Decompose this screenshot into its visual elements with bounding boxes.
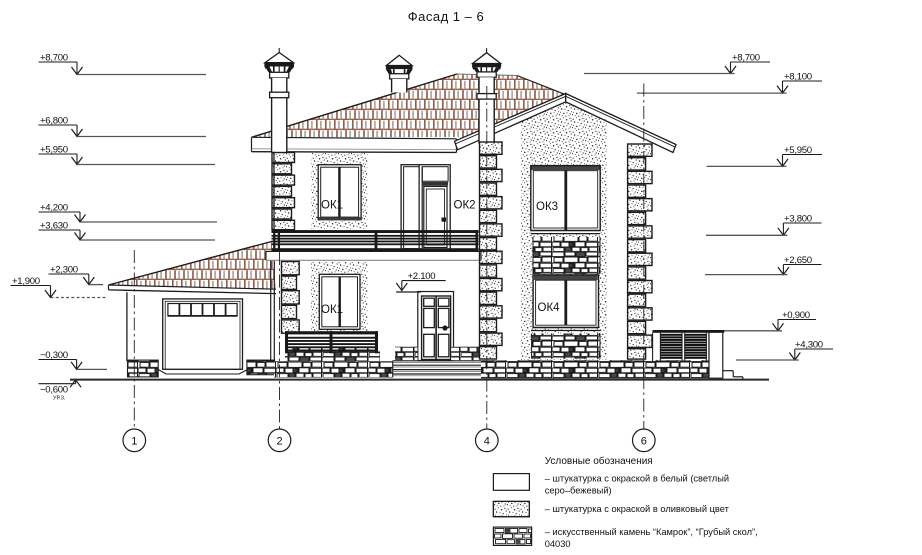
svg-text:ОК1: ОК1	[321, 200, 343, 212]
svg-text:ОК1: ОК1	[321, 304, 343, 316]
svg-text:ОК2: ОК2	[454, 200, 476, 212]
svg-text:– искусственный камень “Камро: – искусственный камень “Камрок”, “Грубый…	[545, 527, 758, 537]
svg-text:серо–бежевый): серо–бежевый)	[545, 486, 612, 496]
svg-text:1: 1	[131, 435, 137, 447]
svg-text:ОК4: ОК4	[538, 302, 561, 314]
svg-text:Фасад 1 – 6: Фасад 1 – 6	[408, 9, 484, 24]
svg-text:– штукатурка с окраской в оли: – штукатурка с окраской в оливковый цвет	[545, 504, 730, 514]
svg-text:04030: 04030	[545, 539, 571, 549]
svg-text:ОК3: ОК3	[536, 201, 558, 213]
svg-text:УР.З.: УР.З.	[53, 396, 66, 402]
svg-text:– штукатурка с окраской в бе: – штукатурка с окраской в белый (светлый	[545, 474, 729, 484]
svg-text:Условные обозначения: Условные обозначения	[545, 455, 653, 467]
svg-text:2: 2	[276, 435, 282, 447]
svg-text:−0,600: −0,600	[40, 385, 68, 396]
svg-text:6: 6	[641, 435, 647, 447]
svg-text:4: 4	[484, 435, 490, 447]
